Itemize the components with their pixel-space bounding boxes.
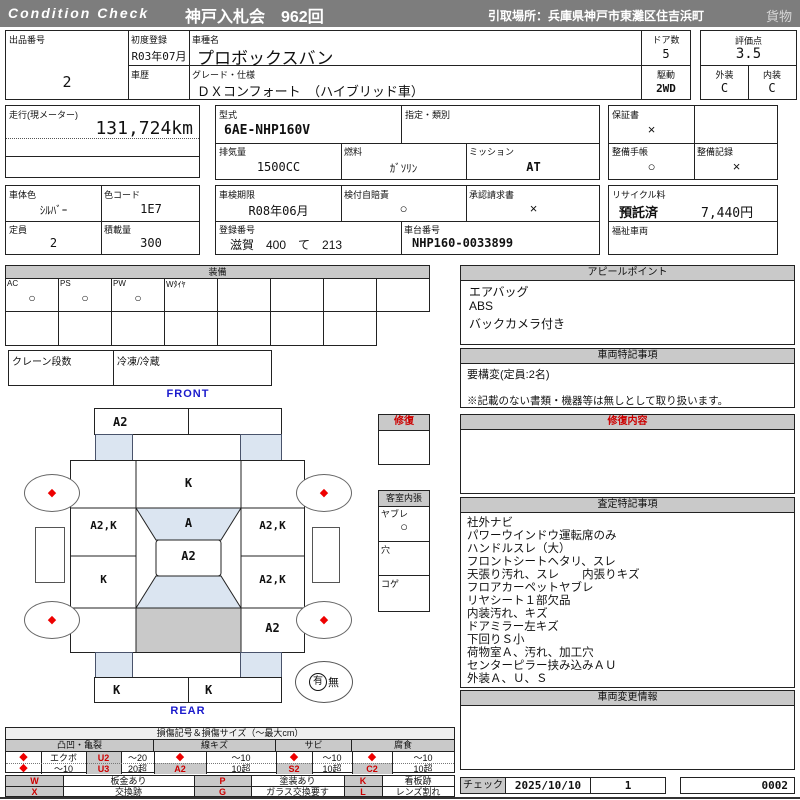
special-notes-header: 車両特記事項 [461,349,794,364]
maintenance-book-label: 整備手帳 [612,145,648,158]
windshield-damage: A [156,516,221,530]
roof-damage: A2 [156,549,221,563]
right-rear-damage: A2 [241,621,304,635]
code-k: K [344,776,382,786]
tailgate-shape [136,608,241,652]
rear-pillar-left [95,652,133,678]
front-pillar-right [240,434,282,461]
equipment-cell [5,311,59,346]
equipment-label: Wﾀｲﾔ [166,279,186,290]
crane-fridge-box: クレーン段数 冷凍/冷蔵 [8,350,272,386]
equipment-cell [217,311,271,346]
code-w-text: 板金あり [63,776,194,786]
wheel-front-right: ◆ [296,474,352,512]
code-g: G [194,787,251,797]
damage-diamond-icon: ◆ [352,752,392,763]
code-x: X [6,787,63,797]
right-step-panel [312,527,340,583]
doors-count: 5 [641,47,691,61]
legend-group-scratch: 線キズ [154,740,276,752]
approval-request-value: × [466,201,601,216]
load-label: 積載量 [104,223,131,236]
legend-code: U3 [86,764,121,775]
score-box: 評価点 3.5 外装 C 内装 C [700,30,797,100]
rear-bumper-right-damage: K [205,683,212,697]
transmission-label: ミッション [469,145,514,158]
special-note-line: 要構変(定員:2名) [467,366,550,382]
sheet-number: 0002 [680,777,795,794]
divider [401,221,402,254]
color-code: 1E7 [101,202,201,216]
registration-number-label: 登録番号 [219,223,255,236]
legend-size: 10超 [206,764,276,775]
legend-size: ～20 [121,753,154,764]
change-info-panel: 車両変更情報 [460,690,795,770]
equipment-cell [164,311,218,346]
legend-size: 10超 [392,764,454,775]
legend-code: A2 [154,764,206,775]
engine-table: 型式 6AE-NHP160V 指定・類別 排気量 1500CC 燃料 ｶﾞｿﾘﾝ… [215,105,600,180]
cabin-row-value: ○ [379,519,429,534]
wheel-rear-left: ◆ [24,601,80,639]
car-body-topview: K A A2 A2,K K A2,K A2,K A2 [70,460,305,653]
code-p-text: 塗装あり [251,776,344,786]
interior-grade-label: 内装 [748,68,796,81]
wheel-front-left: ◆ [24,474,80,512]
rear-bumper: K K [94,677,282,703]
left-door-damage: A2,K [71,519,136,532]
code-x-text: 交換跡 [63,787,194,797]
chassis-number: NHP160-0033899 [412,236,513,250]
damage-diamond-icon: ◆ [48,488,56,499]
equipment-cell [270,278,324,312]
equipment-cell [58,311,112,346]
equipment-cell: PS ○ [58,278,112,312]
odometer-box: 走行(現メーター) 131,724km [5,105,200,178]
legend-size: ～10 [312,753,352,764]
code-l-text: レンズ割れ [382,787,454,797]
legend-size: 10超 [312,764,352,775]
legend-group-rust: サビ [276,740,352,752]
equipment-header: 装備 [5,265,430,279]
divider [379,575,429,576]
first-registration-label: 初度登録 [131,33,167,46]
cargo-tag: 貨物 [766,6,792,25]
approval-request-label: 承認請求書 [469,188,514,201]
lot-number-label: 出品番号 [9,33,45,46]
right-door-damage: A2,K [241,519,304,532]
wheel-rear-right: ◆ [296,601,352,639]
body-color: ｼﾙﾊﾞｰ [6,202,101,218]
first-registration: R03年07月 [125,48,193,64]
equipment-value: ○ [112,291,164,305]
rear-label: REAR [138,705,238,717]
assessment-notes-panel: 査定特記事項 社外ナビ パワーウインドウ運転席のみ ハンドルスレ（大） フロント… [460,497,795,688]
registration-number: 滋賀 400 て 213 [230,236,342,253]
model-code-label: 型式 [219,108,237,121]
check-date: 2025/10/10 [505,777,591,794]
equipment-cell: Wﾀｲﾔ [164,278,218,312]
divider [216,221,599,222]
cabin-row-label: 穴 [381,543,390,556]
doors-label: ドア数 [641,33,691,46]
appeal-points-panel: アピールポイント エアバッグ ABS バックカメラ付き [460,265,795,345]
right-quarter-damage: A2,K [241,573,304,586]
damage-diamond-icon: ◆ [320,488,328,499]
recycle-fee-label: リサイクル料 [612,188,666,201]
code-g-text: ガラス交換要す [251,787,344,797]
damage-diamond-icon: ◆ [320,615,328,626]
fuel-type: ｶﾞｿﾘﾝ [341,160,466,176]
legend-title: 損傷記号＆損傷サイズ（～最大cm） [6,728,454,740]
divider [609,143,777,144]
drive-label: 駆動 [641,68,691,81]
transmission: AT [466,160,601,174]
damage-diamond-icon: ◆ [6,763,41,774]
divider [6,138,199,139]
appeal-line: バックカメラ付き [469,315,565,332]
repair-details-panel: 修復内容 [460,414,795,494]
cabin-lining-box: 客室内張 ヤブレ ○ 穴 コゲ [378,490,430,612]
hood-damage: K [136,476,241,490]
special-notes-panel: 車両特記事項 要構変(定員:2名) ※記載のない書類・機器等は無しとして取り扱い… [460,348,795,408]
recycle-status: 預託済 [619,202,658,221]
history-label: 車歴 [131,68,149,81]
appeal-points-header: アピールポイント [461,266,794,281]
equipment-cell [323,311,377,346]
spare-yes-circled: 有 [309,673,327,691]
spare-tire-indicator: 有 無 [295,661,353,703]
equipment-label: AC [7,279,18,288]
bottom-rule [0,797,800,799]
repair-details-header: 修復内容 [461,415,794,430]
auction-title: 神戸入札会 962回 [185,3,324,27]
repair-flag-box: 修復 [378,414,430,465]
equipment-cell [270,311,324,346]
divider [6,221,199,222]
insurance-value: ○ [341,201,466,216]
capacity: 2 [6,236,101,250]
divider [609,221,777,222]
grade-label: グレード・仕様 [192,68,255,81]
code-k-text: 看板跡 [382,776,454,786]
damage-diamond-icon: ◆ [154,752,206,763]
fuel-label: 燃料 [344,145,362,158]
color-capacity-table: 車体色 ｼﾙﾊﾞｰ 色コード 1E7 定員 2 積載量 300 [5,185,200,255]
spare-no-text: 無 [328,674,339,690]
legend-code: U2 [86,753,121,764]
change-info-header: 車両変更情報 [461,691,794,706]
drive-type: 2WD [641,82,691,95]
maintenance-book-value: ○ [609,159,694,174]
front-pillar-left [95,434,133,461]
divider [188,678,189,702]
grade-value: ＤＸコンフォート （ハイブリッド車） [197,81,424,100]
cabin-row-label: コゲ [381,577,399,590]
capacity-label: 定員 [9,223,27,236]
fridge-label: 冷凍/冷蔵 [117,353,160,368]
warranty-label: 保証書 [612,108,639,121]
recycle-fee: 7,440円 [701,202,753,221]
equipment-label: PW [113,279,126,288]
lot-number: 2 [6,73,128,91]
legend-group-dent: 凸凹・亀裂 [6,740,154,752]
body-color-label: 車体色 [9,188,36,201]
assessment-line: 外装Ａ、Ｕ、Ｓ [467,670,548,686]
assessment-notes-header: 査定特記事項 [461,498,794,513]
equipment-cell [376,278,430,312]
damage-diamond-icon: ◆ [48,615,56,626]
pickup-location: 引取場所：兵庫県神戸市東灘区住吉浜町 [488,7,704,24]
rear-bumper-left-damage: K [113,683,120,697]
divider [113,351,114,385]
welfare-vehicle-label: 福祉車両 [612,224,648,237]
legend-size: ～10 [206,753,276,764]
equipment-cell [111,311,165,346]
front-label: FRONT [138,388,238,400]
color-code-label: 色コード [104,188,140,201]
load-capacity: 300 [101,236,201,250]
legend-text: エクボ [41,753,86,764]
displacement-label: 排気量 [219,145,246,158]
divider [6,156,199,157]
equipment-value: ○ [6,291,58,305]
legend-code: S2 [276,764,312,775]
score-value: 3.5 [701,46,796,62]
legend-text: ～10 [41,764,86,775]
maintenance-record-value: × [694,159,779,174]
code-w: W [6,776,63,786]
equipment-cell: PW ○ [111,278,165,312]
equipment-cell [217,278,271,312]
left-step-panel [35,527,65,583]
code-p: P [194,776,251,786]
divider [379,541,429,542]
crane-label: クレーン段数 [12,353,72,368]
check-label: チェック [460,777,506,794]
equipment-value: ○ [59,291,111,305]
repair-code-legend: W 板金あり P 塗装あり K 看板跡 X 交換跡 G ガラス交換要す L レン… [5,775,455,797]
recycle-table: リサイクル料 預託済 7,440円 福祉車両 [608,185,778,255]
model-code: 6AE-NHP160V [224,123,310,138]
documents-table: 保証書 × 整備手帳 ○ 整備記録 × [608,105,778,180]
title-bar: Condition Check 神戸入札会 962回 引取場所：兵庫県神戸市東灘… [0,0,800,27]
legend-code: C2 [352,764,392,775]
legend-size: 20超 [121,764,154,775]
damage-legend-table: 損傷記号＆損傷サイズ（～最大cm） 凸凹・亀裂 線キズ サビ 腐食 ◆ エクボ … [5,727,455,773]
rear-window-shape [136,576,241,608]
divider [188,409,189,434]
damage-diamond-icon: ◆ [276,752,312,763]
inspection-expiry: R08年06月 [216,202,341,219]
check-count: 1 [590,777,666,794]
front-bumper-damage: A2 [113,415,127,429]
equipment-cell: AC ○ [5,278,59,312]
disclaimer-text: ※記載のない書類・機器等は無しとして取り扱います。 [467,393,728,408]
rear-pillar-right [240,652,282,678]
repair-flag-header: 修復 [379,415,429,431]
legend-size: ～10 [392,753,454,764]
cabin-lining-header: 客室内張 [379,491,429,507]
chassis-number-label: 車台番号 [404,223,440,236]
model-name: プロボックスバン [197,44,333,69]
odometer-value: 131,724km [6,118,193,139]
vehicle-summary-table: 出品番号 2 初度登録 R03年07月 車種名 プロボックスバン ドア数 5 車… [5,30,691,100]
registration-table: 車検期限 R08年06月 検付自賠責 ○ 承認請求書 × 登録番号 滋賀 400… [215,185,600,255]
code-l: L [344,787,382,797]
displacement: 1500CC [216,160,341,174]
inspection-expiry-label: 車検期限 [219,188,255,201]
brand-logo: Condition Check [8,5,149,21]
appeal-line: ABS [469,299,493,313]
equipment-label: PS [60,279,71,288]
insurance-label: 検付自賠責 [344,188,389,201]
exterior-grade: C [701,81,748,95]
equipment-cell [323,278,377,312]
appeal-line: エアバッグ [469,283,529,300]
left-quarter-damage: K [71,573,136,586]
front-bumper: A2 [94,408,282,435]
divider [216,143,599,144]
exterior-grade-label: 外装 [701,68,748,81]
class-label: 指定・類別 [405,108,450,121]
divider [401,106,402,143]
warranty-value: × [609,122,694,137]
auction-condition-sheet: Condition Check 神戸入札会 962回 引取場所：兵庫県神戸市東灘… [0,0,800,800]
maintenance-record-label: 整備記録 [697,145,733,158]
interior-grade: C [748,81,796,95]
